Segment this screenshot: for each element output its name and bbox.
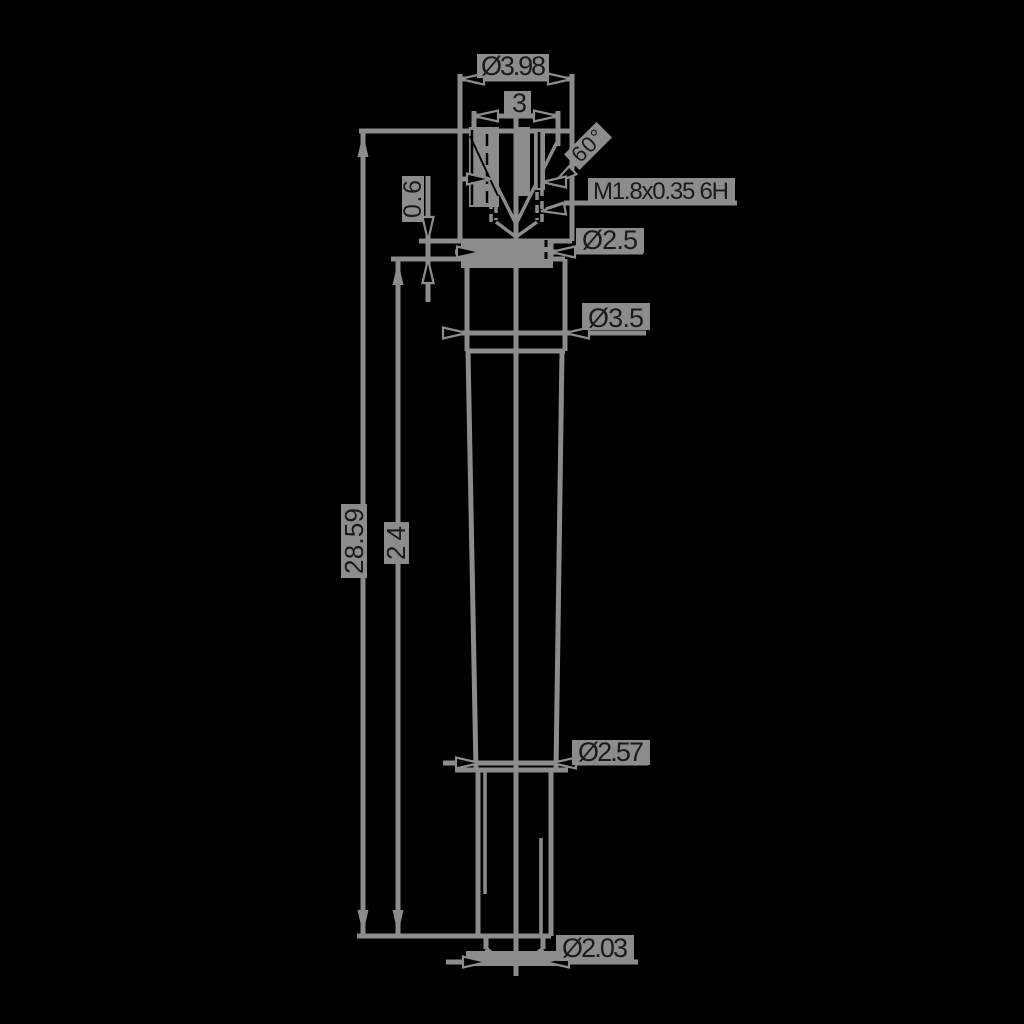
svg-text:Ø2.57: Ø2.57: [578, 737, 644, 767]
svg-text:28.59: 28.59: [339, 508, 369, 574]
svg-text:Ø3.5: Ø3.5: [588, 303, 644, 333]
svg-text:0.6: 0.6: [399, 180, 427, 218]
svg-text:Ø2.5: Ø2.5: [582, 225, 638, 255]
svg-text:3: 3: [512, 88, 527, 118]
svg-text:Ø2.03: Ø2.03: [562, 933, 628, 963]
svg-text:Ø3.98: Ø3.98: [481, 51, 546, 81]
